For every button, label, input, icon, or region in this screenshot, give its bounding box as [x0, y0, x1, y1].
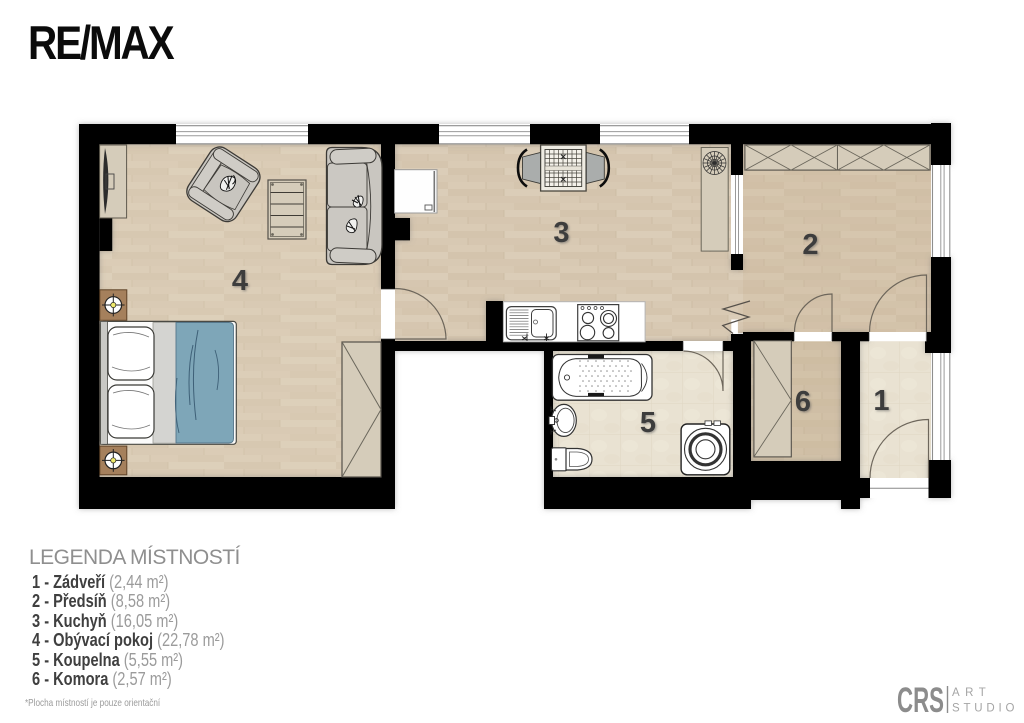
- svg-text:5: 5: [640, 407, 656, 439]
- svg-text:3: 3: [553, 217, 569, 249]
- svg-text:CRS: CRS: [897, 683, 944, 718]
- svg-text:STUDIO: STUDIO: [952, 703, 1018, 715]
- svg-text:2: 2: [802, 229, 818, 261]
- svg-text:1: 1: [873, 385, 889, 417]
- svg-text:4: 4: [232, 265, 248, 297]
- svg-text:6: 6: [795, 386, 811, 418]
- svg-text:ART: ART: [952, 687, 991, 699]
